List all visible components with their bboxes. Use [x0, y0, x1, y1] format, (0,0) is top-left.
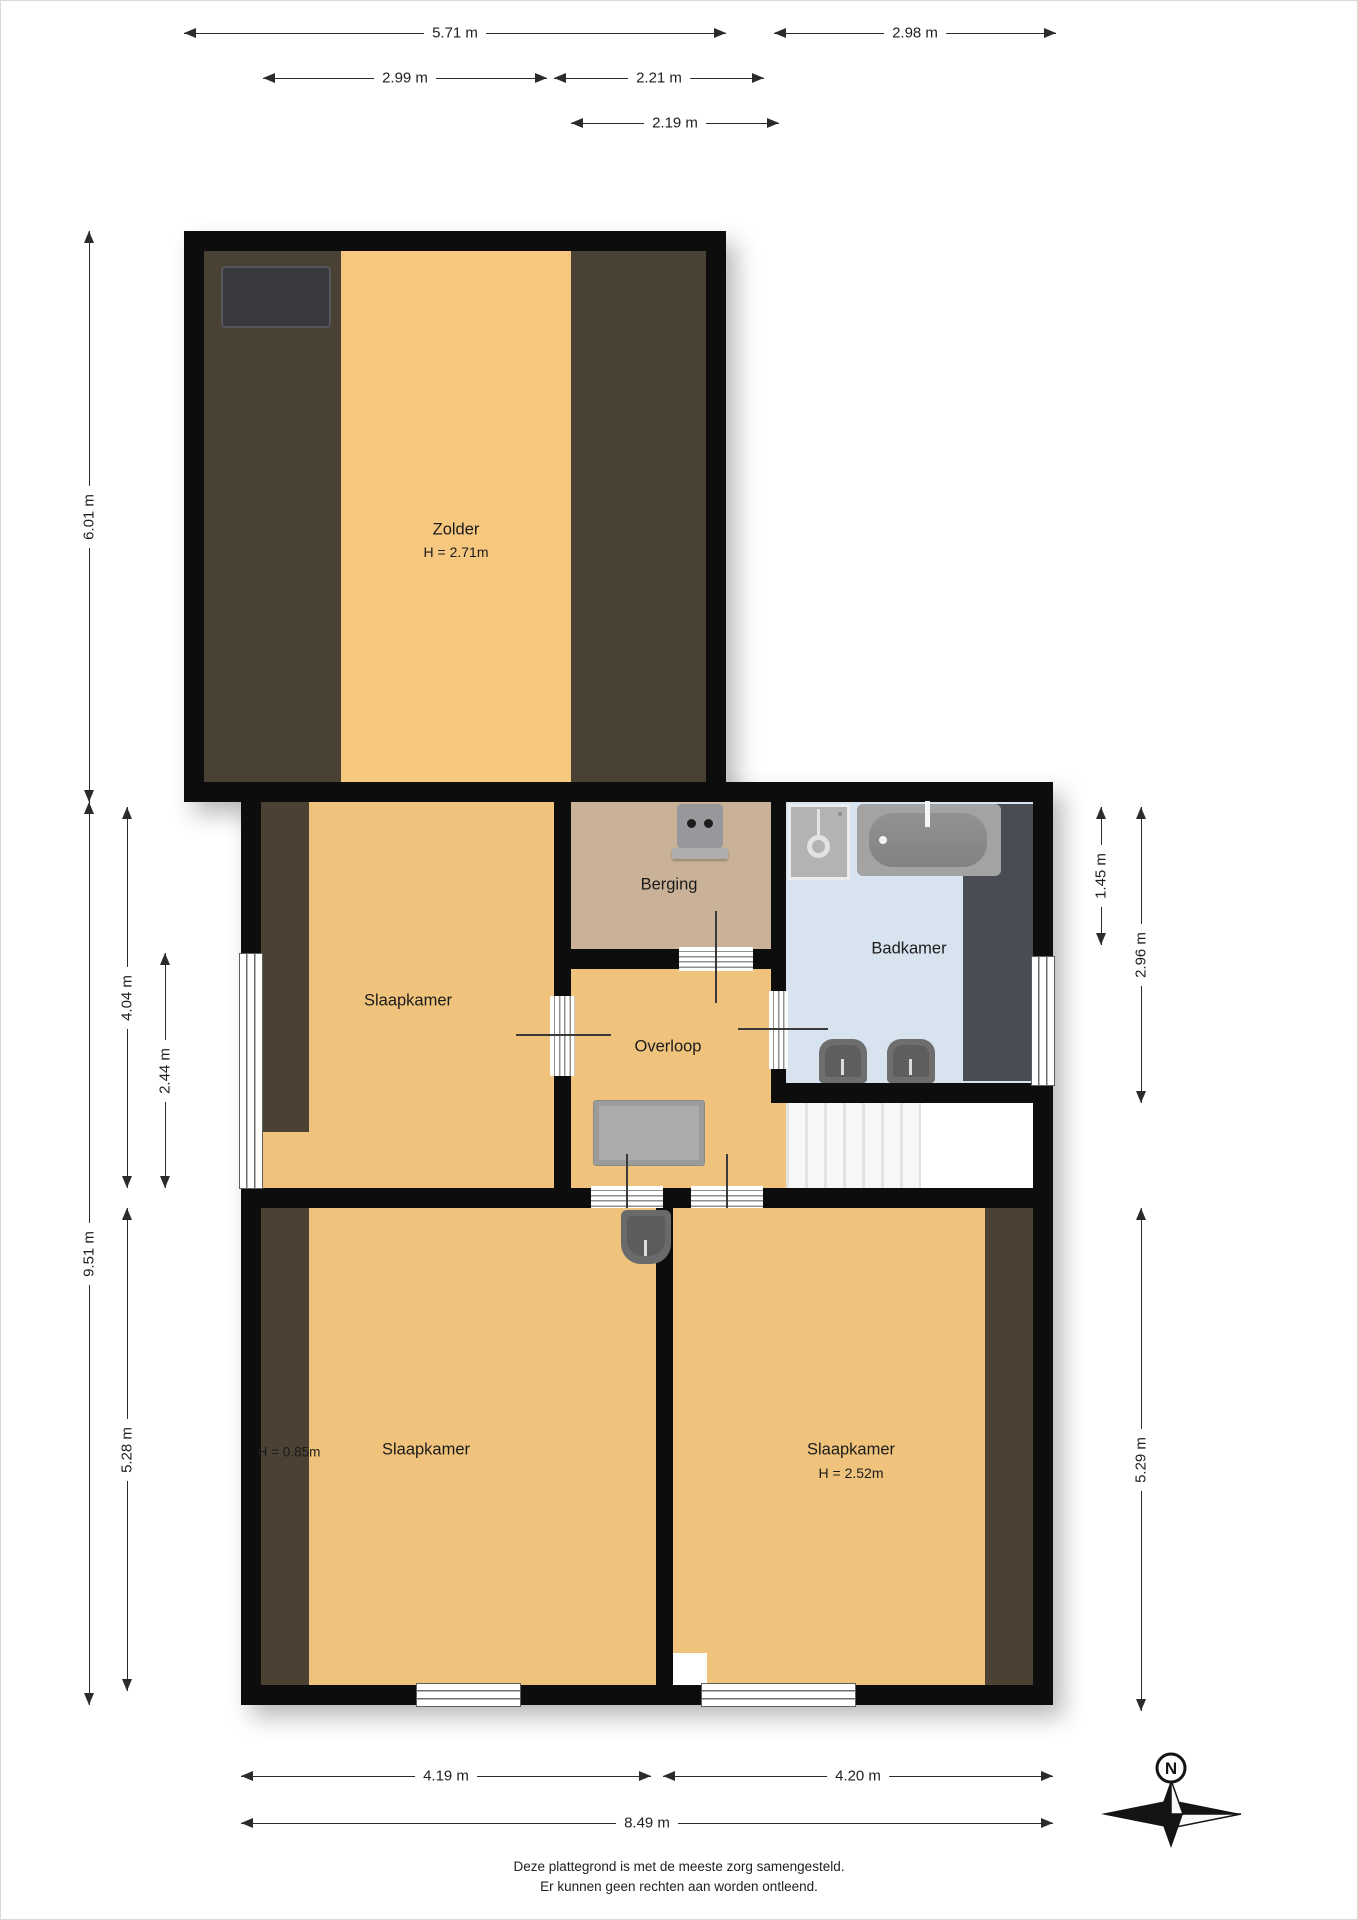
room-label-slaapkamer-bottom-right: Slaapkamer	[807, 1441, 895, 1460]
wall	[184, 782, 1053, 802]
slaapkamer-middle-low-ceiling-strip	[261, 802, 309, 1132]
dimension-top-2-19: 2.19 m	[571, 123, 779, 124]
footer-disclaimer-line1: Deze plattegrond is met de meeste zorg s…	[1, 1859, 1357, 1874]
wall	[241, 1685, 1053, 1705]
zolder-floor	[341, 251, 571, 782]
stairs-icon	[786, 1103, 921, 1188]
wall	[786, 1083, 1033, 1103]
dimension-left-2-44: 2.44 m	[165, 953, 166, 1188]
dimension-label: 5.29 m	[1133, 1429, 1150, 1491]
wall	[1033, 802, 1053, 1705]
door-slaapkamer-overloop	[550, 996, 575, 1076]
sink-icon	[621, 1210, 671, 1264]
dimension-label: 2.99 m	[374, 70, 436, 87]
dimension-label: 2.98 m	[884, 25, 946, 42]
floorplan-page: 5.71 m 2.98 m 2.99 m 2.21 m 2.19 m 6.01 …	[0, 0, 1358, 1920]
dimension-top-2-21: 2.21 m	[554, 78, 764, 79]
bathtub-icon	[857, 804, 1001, 876]
dimension-label: 4.20 m	[827, 1768, 889, 1785]
room-height-slaapkamer-bottom-left: H = 0.85m	[258, 1445, 321, 1460]
dimension-right-5-29: 5.29 m	[1141, 1208, 1142, 1711]
outlet-dot	[687, 819, 696, 828]
dimension-top-2-99: 2.99 m	[263, 78, 547, 79]
compass-rose: N	[1091, 1746, 1251, 1866]
sink-icon	[819, 1039, 867, 1083]
dimension-right-1-45: 1.45 m	[1101, 807, 1102, 945]
room-label-berging: Berging	[641, 876, 698, 895]
wall	[184, 231, 204, 802]
washbasin-icon	[788, 804, 850, 880]
skylight-icon	[221, 266, 331, 328]
washbasin-bowl	[807, 835, 830, 858]
dimension-label: 2.96 m	[1133, 924, 1150, 986]
dimension-label: 2.21 m	[628, 70, 690, 87]
wall	[656, 1208, 673, 1685]
dimension-label: 9.51 m	[81, 1223, 98, 1285]
dimension-label: 6.01 m	[81, 486, 98, 548]
room-label-badkamer: Badkamer	[871, 940, 946, 959]
overloop-floor-stair-opening	[771, 1103, 786, 1188]
room-label-zolder: Zolder	[433, 521, 480, 540]
footer-disclaimer-line2: Er kunnen geen rechten aan worden ontlee…	[1, 1879, 1357, 1894]
wall	[184, 231, 726, 251]
compass-icon: N	[1091, 1746, 1251, 1866]
dimension-bottom-4-20: 4.20 m	[663, 1776, 1053, 1777]
dimension-left-9-51: 9.51 m	[89, 802, 90, 1705]
bathtub-tap	[925, 801, 930, 827]
sink-tap	[841, 1059, 844, 1075]
room-label-slaapkamer-middle: Slaapkamer	[364, 992, 452, 1011]
dimension-top-2-98: 2.98 m	[774, 33, 1056, 34]
wall	[241, 802, 261, 1705]
room-height-zolder: H = 2.71m	[424, 544, 489, 560]
dimension-label: 2.19 m	[644, 115, 706, 132]
door-tick	[715, 911, 717, 1003]
dimension-label: 4.19 m	[415, 1768, 477, 1785]
slaapkamer-bottom-right-low-ceiling-strip	[985, 1208, 1033, 1685]
dimension-left-6-01: 6.01 m	[89, 231, 90, 802]
sink-tap	[909, 1059, 912, 1075]
washer-outlet-tray	[672, 848, 728, 859]
window-slaapkamer-middle	[239, 953, 263, 1189]
dimension-left-4-04: 4.04 m	[127, 807, 128, 1188]
sink-tap	[644, 1240, 647, 1256]
dimension-bottom-4-19: 4.19 m	[241, 1776, 651, 1777]
bathtub-drain	[879, 836, 887, 844]
window-badkamer	[1031, 956, 1055, 1086]
window-slaapkamer-bottom-right	[701, 1683, 856, 1707]
wall	[554, 802, 571, 1188]
stair-landing	[921, 1103, 1033, 1188]
dimension-label: 8.49 m	[616, 1815, 678, 1832]
room-label-overloop: Overloop	[635, 1038, 702, 1057]
window-slaapkamer-bottom-left	[416, 1683, 521, 1707]
dimension-left-5-28: 5.28 m	[127, 1208, 128, 1691]
sink-icon	[887, 1039, 935, 1083]
dimension-label: 5.71 m	[424, 25, 486, 42]
door-tick	[738, 1028, 828, 1030]
washbasin-tap	[817, 809, 820, 837]
compass-north-label: N	[1165, 1759, 1177, 1778]
room-label-slaapkamer-bottom-left: Slaapkamer	[382, 1441, 470, 1460]
washer-outlet-icon	[677, 804, 723, 848]
dimension-bottom-8-49: 8.49 m	[241, 1823, 1053, 1824]
door-overloop-badkamer	[769, 991, 788, 1069]
door-tick	[516, 1034, 611, 1036]
dimension-label: 2.44 m	[157, 1040, 174, 1102]
floor-hatch-icon	[594, 1101, 704, 1165]
dimension-top-5-71: 5.71 m	[184, 33, 726, 34]
washbasin-drain	[838, 812, 842, 816]
outlet-dot	[704, 819, 713, 828]
room-height-slaapkamer-bottom-right: H = 2.52m	[819, 1465, 884, 1481]
wall	[706, 231, 726, 802]
dimension-label: 1.45 m	[1093, 845, 1110, 907]
dimension-label: 5.28 m	[119, 1419, 136, 1481]
dimension-right-2-96: 2.96 m	[1141, 807, 1142, 1103]
dimension-label: 4.04 m	[119, 967, 136, 1029]
chimney-notch	[673, 1653, 707, 1685]
